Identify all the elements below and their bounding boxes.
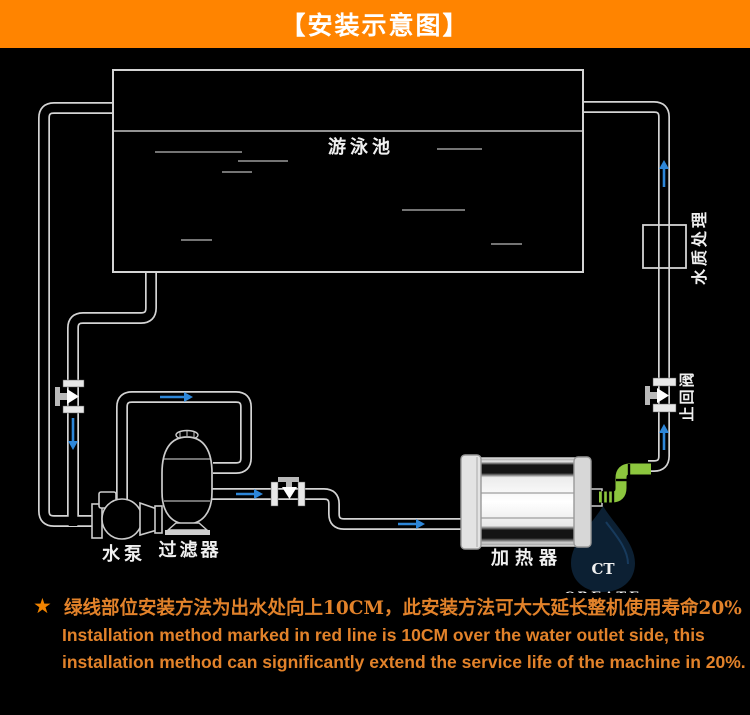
page: 【安装示意图】: [0, 0, 750, 715]
installation-diagram: 游泳池 水质处理 止回阀: [0, 48, 750, 593]
filter: 过滤器: [159, 430, 222, 561]
valve-middle-handle: [278, 477, 299, 482]
pump-inlet-flange: [92, 504, 102, 538]
water-treatment-label: 水质处理: [690, 209, 709, 285]
filter-base-plate: [165, 530, 210, 535]
watermark-initials: CT: [591, 560, 615, 578]
pump: 水泵: [92, 492, 162, 565]
swimming-pool: 游泳池: [113, 70, 583, 272]
valve-left: [55, 380, 84, 413]
pipe-return-to-pool: [582, 107, 664, 466]
pump-motor-cap: [155, 506, 162, 533]
pool-label: 游泳池: [328, 136, 394, 158]
heater-right-cap: [574, 457, 591, 547]
pump-body: [102, 499, 142, 539]
install-notes: ★ 绿线部位安装方法为出水处向上10CM，此安装方法可大大延长整机使用寿命20%…: [0, 588, 750, 674]
check-valve-handle: [645, 386, 650, 405]
check-valve: [645, 378, 676, 412]
page-title: 【安装示意图】: [280, 6, 469, 42]
header-bar: 【安装示意图】: [0, 0, 750, 48]
heater-body: [477, 458, 577, 546]
star-bullet-icon: ★: [33, 596, 52, 617]
filter-tank: [162, 437, 212, 524]
pump-label: 水泵: [102, 543, 146, 565]
filter-base: [168, 523, 207, 530]
check-valve-label: 止回阀: [678, 370, 696, 421]
note-line-zh: 绿线部位安装方法为出水处向上10CM，此安装方法可大大延长整机使用寿命20%: [64, 594, 740, 620]
heater-left-cap: [461, 455, 481, 549]
filter-label: 过滤器: [159, 539, 222, 561]
green-pipe: [599, 464, 651, 503]
note-line-en-1: Installation method marked in red line i…: [62, 623, 740, 647]
valve-left-handle: [55, 387, 60, 406]
heater-label: 加热器: [490, 547, 563, 569]
note-line-en-2: installation method can significantly ex…: [62, 650, 740, 674]
valve-middle: [271, 477, 305, 506]
